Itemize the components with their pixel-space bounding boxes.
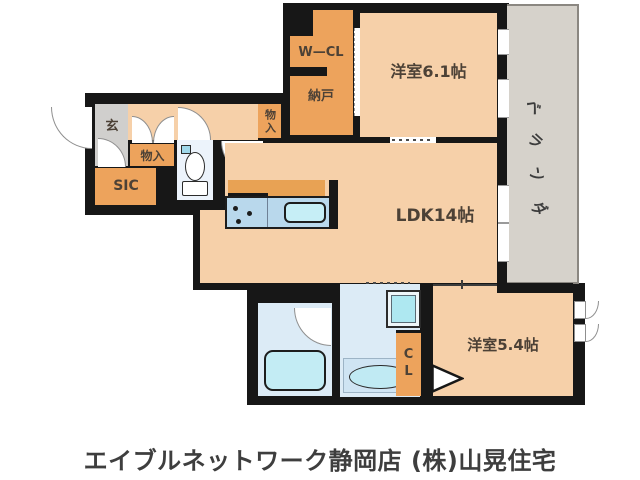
wall-bedroom2-top-right — [497, 283, 573, 293]
footer-caption: エイブルネットワーク静岡店 (株)山晃住宅 — [0, 438, 640, 478]
door-triangle-icon — [431, 364, 464, 393]
toilet-tank-icon — [182, 181, 208, 196]
stove-burner-icon — [236, 219, 241, 224]
window-bedroom2-lower — [574, 324, 586, 342]
room-label-nando: 納戸 — [290, 88, 352, 104]
window-bedroom2-upper — [574, 301, 586, 319]
window-bedroom1-upper — [498, 29, 509, 55]
wall-wcl-notch — [283, 3, 313, 36]
room-label-wcl: W—CL — [288, 44, 354, 60]
room-label-bedroom-6-1: 洋室6.1帖 — [360, 62, 497, 82]
washing-machine-icon — [386, 290, 421, 328]
room-label-cl: CL — [398, 338, 419, 390]
stove-burner-icon — [247, 211, 252, 216]
window-ldk-mullion — [498, 222, 509, 224]
balcony-label-char: ラ — [522, 128, 547, 153]
toilet-bowl-icon — [185, 152, 205, 181]
floorplan-page: { "plan": { "type": "japanese-apartment-… — [0, 0, 640, 480]
washing-machine-drum-icon — [391, 295, 416, 323]
room-label-monoire2: 物入 — [259, 106, 281, 137]
room-label-monoire1: 物入 — [131, 148, 174, 163]
sliding-door-bedroom2-tick — [461, 280, 463, 289]
kitchen-sink-icon — [284, 202, 326, 223]
window-bedroom2-lower-arc — [586, 324, 599, 342]
balcony-area: ベ ラ ン ダ — [507, 4, 579, 284]
sliding-door-bedroom2-line — [433, 284, 497, 286]
room-label-sic: SIC — [97, 177, 155, 195]
room-label-genkan: 玄 — [97, 118, 127, 134]
window-bedroom1-lower — [498, 79, 509, 118]
balcony-label-char: ン — [524, 162, 549, 187]
window-bedroom2-upper-arc — [586, 301, 599, 319]
wall-wcl-divider — [290, 67, 327, 76]
balcony-label-char: ベ — [520, 94, 545, 119]
room-label-bedroom-5-4: 洋室5.4帖 — [433, 336, 573, 354]
balcony-label-char: ダ — [526, 196, 551, 221]
stove-burner-icon — [233, 206, 238, 211]
bathtub-icon — [264, 350, 326, 391]
sliding-door-washroom-ticks — [366, 282, 410, 284]
room-label-ldk: LDK14帖 — [370, 206, 500, 226]
sliding-door-bedroom1-ticks — [392, 139, 434, 141]
kitchen-counter-divider — [267, 198, 268, 227]
kitchen-end-wall — [329, 180, 338, 229]
floorplan-canvas: ベ ラ ン ダ W—CL 納戸 洋室6.1帖 玄 物入 物入 SIC LDK14… — [0, 0, 640, 480]
front-door-arc — [51, 107, 92, 149]
